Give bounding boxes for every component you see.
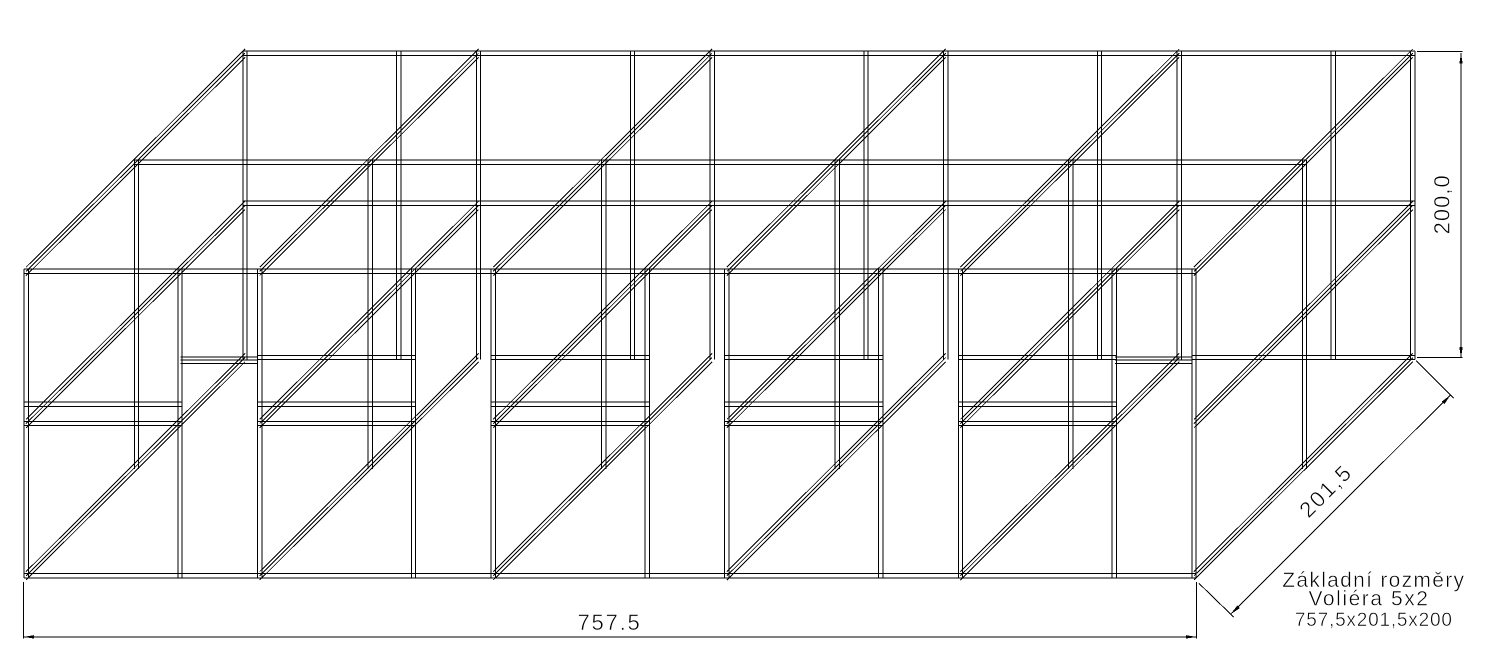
- svg-text:757,5x201,5x200: 757,5x201,5x200: [1295, 610, 1453, 631]
- svg-text:Voliéra 5x2: Voliéra 5x2: [1309, 588, 1430, 611]
- svg-text:201,5: 201,5: [1294, 459, 1357, 522]
- svg-text:757.5: 757.5: [577, 610, 641, 635]
- svg-text:200,0: 200,0: [1429, 174, 1454, 234]
